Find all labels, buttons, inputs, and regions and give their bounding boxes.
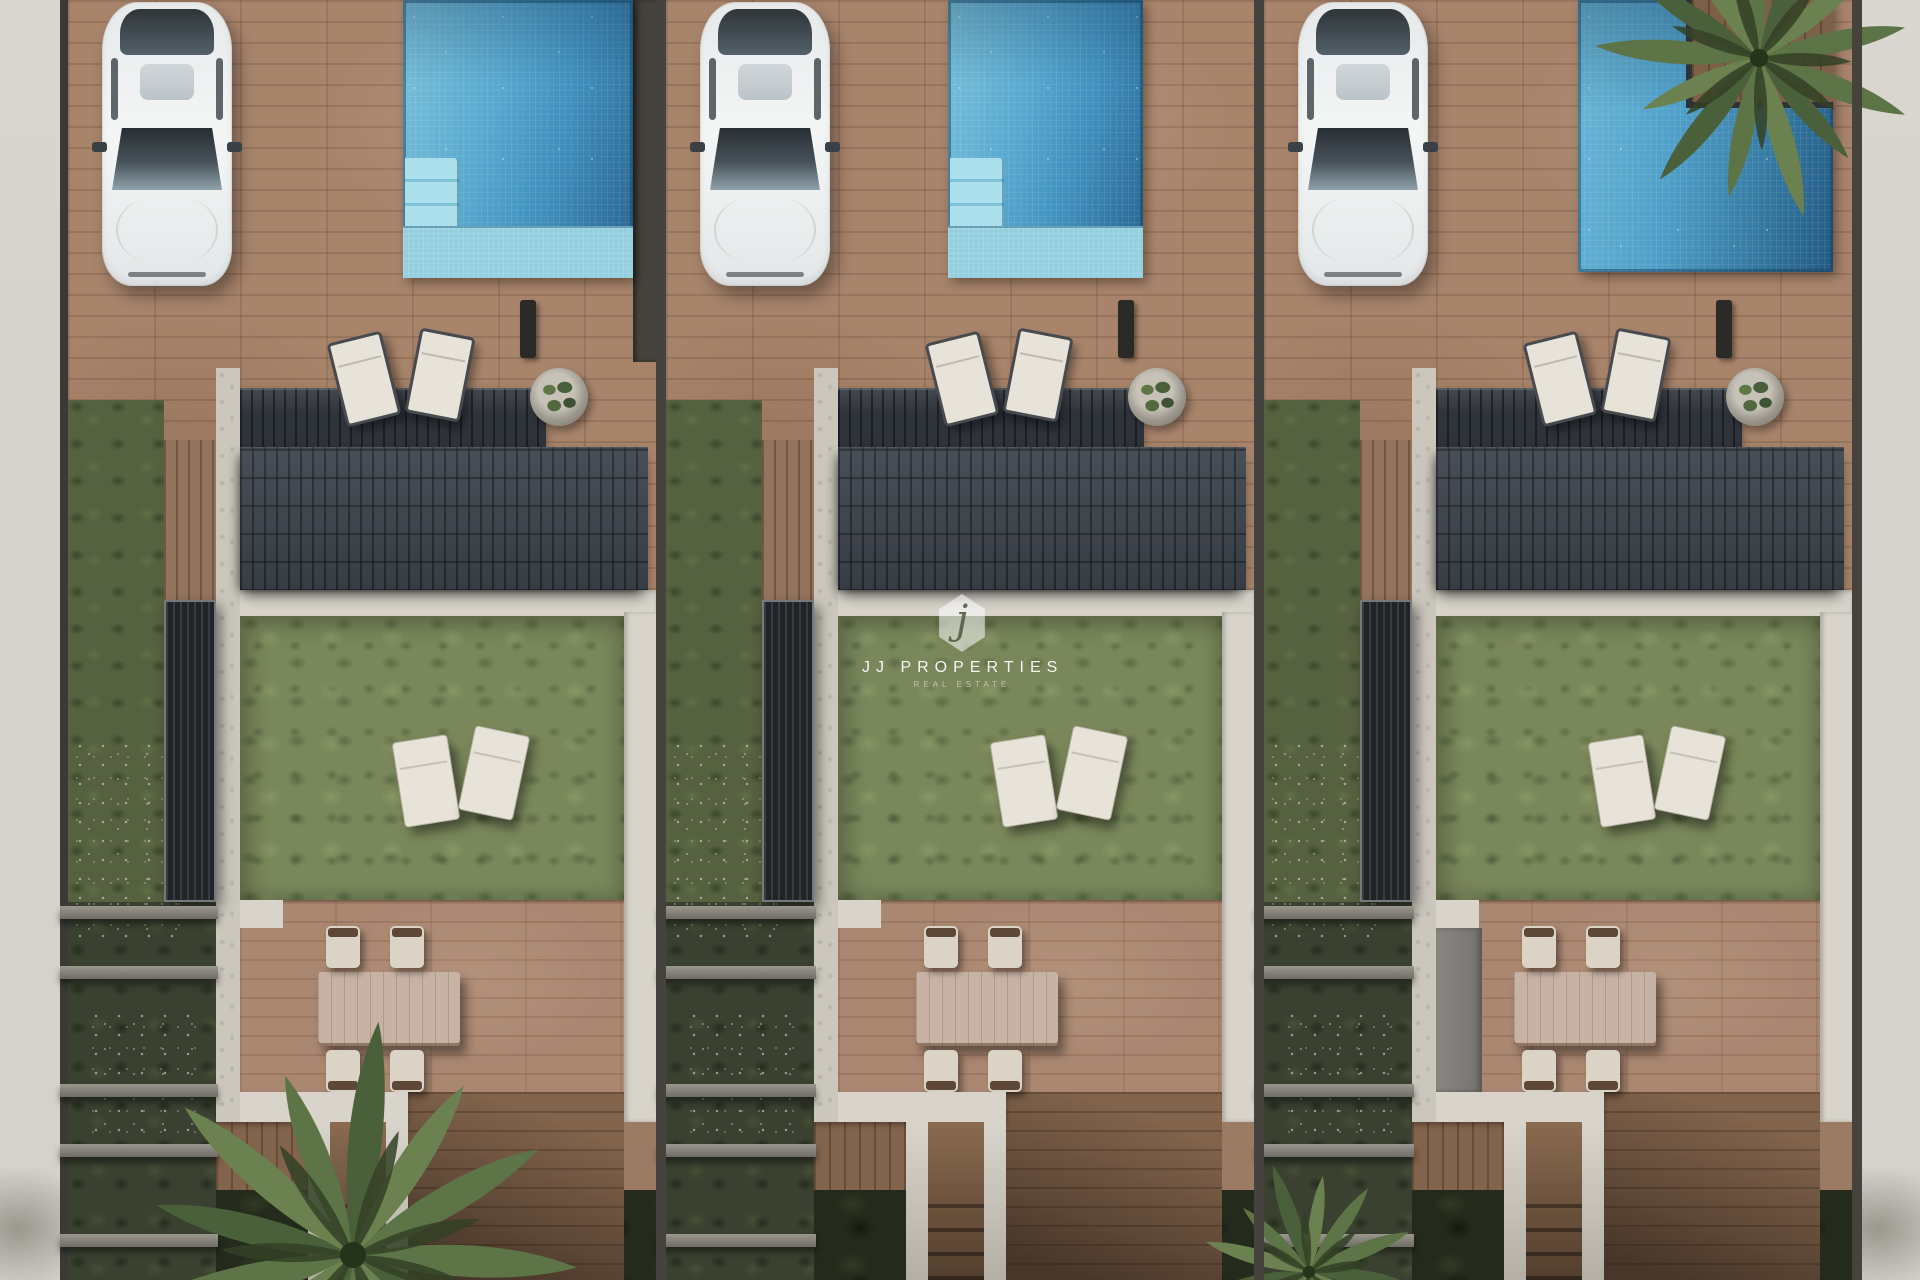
car-side-window-left: [111, 58, 118, 120]
louvered-pergola: [1360, 600, 1412, 902]
car-side-window-right: [216, 58, 223, 120]
walkway-band-bottom: [1412, 1092, 1604, 1122]
car-roof-panel: [1336, 64, 1390, 100]
side-walkway: [164, 440, 216, 600]
white-car: [1298, 2, 1428, 286]
car-roof-panel: [738, 64, 792, 100]
dining-chair: [326, 926, 360, 968]
unit-divider-wall: [1254, 0, 1264, 1280]
pool-shallow-ledge: [948, 226, 1143, 278]
dining-chair: [326, 1050, 360, 1092]
dining-chair: [390, 1050, 424, 1092]
walkway-band-bottom: [216, 1092, 408, 1122]
swimming-pool: [1578, 0, 1833, 272]
garden-beam: [60, 1234, 218, 1247]
watermark-monogram: j: [956, 600, 968, 640]
car-windshield: [710, 128, 820, 190]
unit-divider-wall: [656, 0, 666, 1280]
car-roof-panel: [140, 64, 194, 100]
stone-wall: [814, 368, 838, 1122]
watermark: j JJ PROPERTIES REAL ESTATE: [862, 594, 1062, 689]
white-car: [102, 2, 232, 286]
garden-beam: [1256, 906, 1414, 919]
car-side-window-right: [814, 58, 821, 120]
car-windshield: [112, 128, 222, 190]
white-wall-right: [1222, 612, 1254, 1122]
rear-stairs: [330, 1122, 386, 1280]
stone-wall: [1412, 368, 1436, 1122]
walkway-column: [308, 1122, 330, 1280]
roof-main-section: [1436, 447, 1844, 590]
louvered-pergola: [164, 600, 216, 902]
watermark-hexagon-logo: j: [936, 594, 988, 652]
unit-divider-wall: [1852, 0, 1862, 1280]
white-wall-right: [1820, 612, 1852, 1122]
car-hood: [116, 198, 218, 262]
roof-main-section: [240, 447, 648, 590]
dining-table: [1514, 972, 1656, 1046]
car-mirror-left: [1288, 142, 1303, 152]
pool-palm-planter: [1686, 0, 1833, 108]
garden-beam: [1256, 1234, 1414, 1247]
car-mirror-right: [227, 142, 242, 152]
dining-chair: [1586, 1050, 1620, 1092]
dining-chair: [390, 926, 424, 968]
watermark-brand-text: JJ PROPERTIES: [862, 659, 1062, 677]
car-rear-window: [120, 9, 214, 55]
dining-chair: [1522, 1050, 1556, 1092]
garden-beam: [658, 1234, 816, 1247]
gray-panel: [1436, 928, 1482, 1092]
dining-table: [318, 972, 460, 1046]
car-grille: [1324, 272, 1402, 277]
walkway-column: [984, 1122, 1006, 1280]
walkway-band-top: [216, 590, 656, 616]
street-strip-left: [0, 0, 60, 1280]
car-rear-window: [1316, 9, 1410, 55]
aerial-villas-render: j JJ PROPERTIES REAL ESTATE: [0, 0, 1920, 1280]
outdoor-shower: [520, 300, 536, 358]
car-windshield: [1308, 128, 1418, 190]
dining-chair: [924, 926, 958, 968]
car-hood: [1312, 198, 1414, 262]
dining-chair: [1522, 926, 1556, 968]
stone-wall: [216, 368, 240, 1122]
car-hood: [714, 198, 816, 262]
garden-beam: [658, 1144, 816, 1157]
terrace-extension: [408, 1092, 624, 1280]
villa-unit-1: [68, 0, 656, 1280]
terrace-extension: [1604, 1092, 1820, 1280]
swimming-pool: [948, 0, 1143, 278]
white-wall-right: [624, 612, 656, 1122]
rear-deck-block: [1412, 1122, 1504, 1190]
car-side-window-left: [1307, 58, 1314, 120]
dining-chair: [924, 1050, 958, 1092]
walkway-column: [906, 1122, 928, 1280]
walkway-column: [386, 1122, 408, 1280]
rear-deck-block: [814, 1122, 906, 1190]
garden-beam: [60, 1084, 218, 1097]
walkway-column: [1582, 1122, 1604, 1280]
car-mirror-right: [825, 142, 840, 152]
garden-beam: [1256, 1084, 1414, 1097]
car-side-window-left: [709, 58, 716, 120]
dining-chair: [1586, 926, 1620, 968]
street-strip-right: [1860, 0, 1920, 1280]
pool-shallow-ledge: [403, 226, 633, 278]
side-walkway: [762, 440, 814, 600]
potted-plant: [1128, 368, 1186, 426]
roof-main-section: [838, 447, 1246, 590]
car-mirror-right: [1423, 142, 1438, 152]
potted-plant: [530, 368, 588, 426]
outdoor-shower: [1716, 300, 1732, 358]
terrace-extension: [1006, 1092, 1222, 1280]
walkway-column: [1504, 1122, 1526, 1280]
car-mirror-left: [690, 142, 705, 152]
rear-stairs: [1526, 1122, 1582, 1280]
swimming-pool: [403, 0, 633, 278]
rear-stairs: [928, 1122, 984, 1280]
villa-unit-3: [1264, 0, 1852, 1280]
garden-beam: [658, 906, 816, 919]
watermark-tagline-text: REAL ESTATE: [862, 680, 1062, 689]
garden-beam: [60, 906, 218, 919]
car-rear-window: [718, 9, 812, 55]
garden-beam: [658, 966, 816, 979]
potted-plant: [1726, 368, 1784, 426]
garden-beam: [658, 1084, 816, 1097]
car-mirror-left: [92, 142, 107, 152]
walkway-band-top: [1412, 590, 1852, 616]
louvered-pergola: [762, 600, 814, 902]
white-car: [700, 2, 830, 286]
car-side-window-right: [1412, 58, 1419, 120]
walkway-band-bottom: [814, 1092, 1006, 1122]
garden-beam: [1256, 966, 1414, 979]
rear-deck-block: [216, 1122, 308, 1190]
outdoor-shower: [1118, 300, 1134, 358]
side-walkway: [1360, 440, 1412, 600]
car-grille: [726, 272, 804, 277]
car-grille: [128, 272, 206, 277]
garden-beam: [60, 966, 218, 979]
garden-beam: [1256, 1144, 1414, 1157]
dining-chair: [988, 926, 1022, 968]
dining-table: [916, 972, 1058, 1046]
dining-chair: [988, 1050, 1022, 1092]
garden-beam: [60, 1144, 218, 1157]
